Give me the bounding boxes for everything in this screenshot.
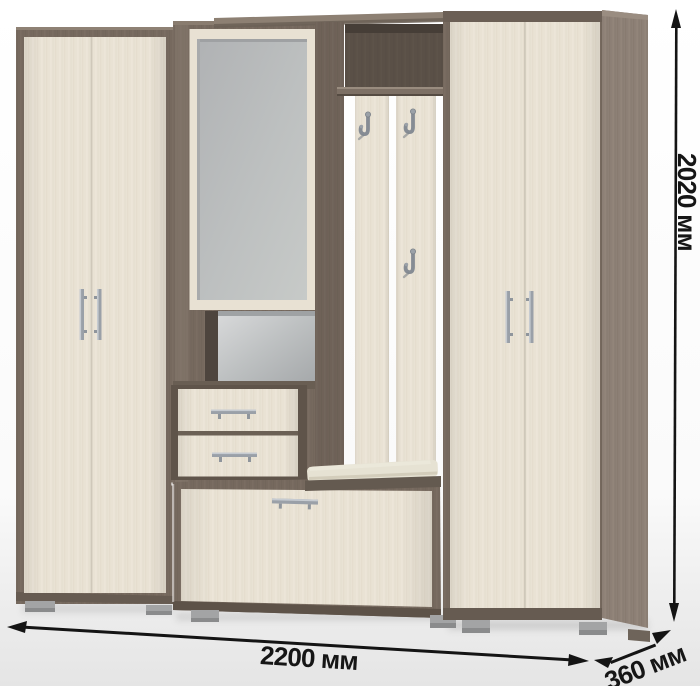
svg-text:2020 мм: 2020 мм: [672, 153, 700, 251]
svg-text:2200 мм: 2200 мм: [259, 640, 359, 676]
